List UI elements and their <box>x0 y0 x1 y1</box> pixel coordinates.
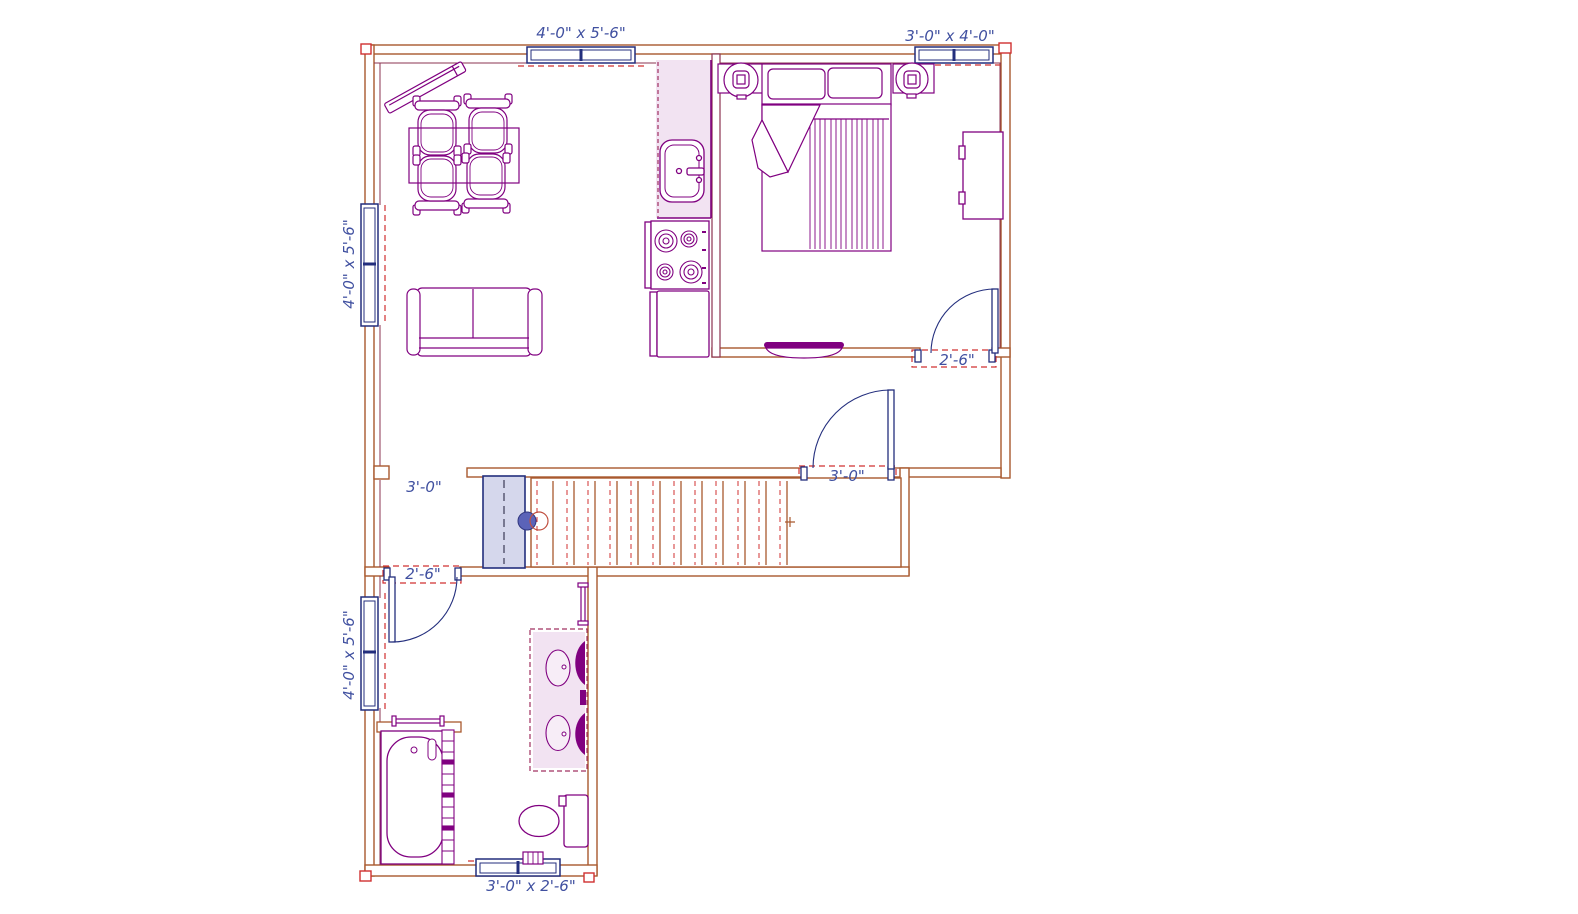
sofa[interactable] <box>407 288 542 356</box>
hall-opening-stub-wall[interactable] <box>374 466 389 479</box>
refrigerator[interactable] <box>650 291 709 357</box>
window-bottom[interactable] <box>476 859 560 876</box>
tub-faucet-icon <box>428 739 436 760</box>
interior-partition-kitchen-bedroom[interactable] <box>712 54 720 357</box>
toilet[interactable] <box>519 795 588 847</box>
window-left-upper[interactable] <box>361 204 378 326</box>
window-top-right-label[interactable]: 3'-0" x 4'-0" <box>905 27 994 45</box>
dining-chairs <box>413 94 512 215</box>
towel-bar-vertical[interactable] <box>578 583 588 625</box>
window-left-lower-label[interactable]: 4'-0" x 5'-6" <box>340 610 358 699</box>
window-left-upper-label[interactable]: 4'-0" x 5'-6" <box>340 219 358 308</box>
window-left-lower[interactable] <box>361 597 378 710</box>
staircase[interactable] <box>531 478 901 567</box>
sink-basin-lower <box>546 716 570 751</box>
nightstand-right[interactable] <box>893 63 934 98</box>
dining-chair-top-right[interactable] <box>464 94 512 154</box>
stove[interactable] <box>645 221 709 289</box>
vanity[interactable] <box>530 629 587 771</box>
window-top-right[interactable] <box>915 47 993 63</box>
towel-ladder[interactable] <box>442 730 454 864</box>
dining-chair-bottom-left[interactable] <box>413 155 461 215</box>
dresser[interactable] <box>959 132 1003 219</box>
window-top-left[interactable] <box>527 47 635 63</box>
entry-door-label[interactable]: 3'-0" <box>829 467 865 485</box>
drawing-page: 4'-0" x 5'-6" 3'-0" x 4'-0" 4'-0" x 5'-6… <box>0 0 1578 914</box>
window-bottom-label[interactable]: 3'-0" x 2'-6" <box>486 877 575 895</box>
hall-opening-label[interactable]: 3'-0" <box>406 478 442 496</box>
bathroom-door-label[interactable]: 2'-6" <box>405 565 441 583</box>
bed[interactable] <box>752 64 891 251</box>
floor-vent[interactable] <box>523 852 543 864</box>
dining-chair-top-left[interactable] <box>413 96 461 156</box>
window-top-left-label[interactable]: 4'-0" x 5'-6" <box>536 24 625 42</box>
kitchen-sink[interactable] <box>660 140 704 202</box>
bedroom-door-label[interactable]: 2'-6" <box>939 351 975 369</box>
nightstand-left[interactable] <box>718 63 764 99</box>
tub-drain-icon <box>411 747 417 753</box>
sink-basin-upper <box>546 650 570 686</box>
floorplan-canvas: 4'-0" x 5'-6" 3'-0" x 4'-0" 4'-0" x 5'-6… <box>0 0 1578 914</box>
bathtub[interactable] <box>381 731 449 864</box>
